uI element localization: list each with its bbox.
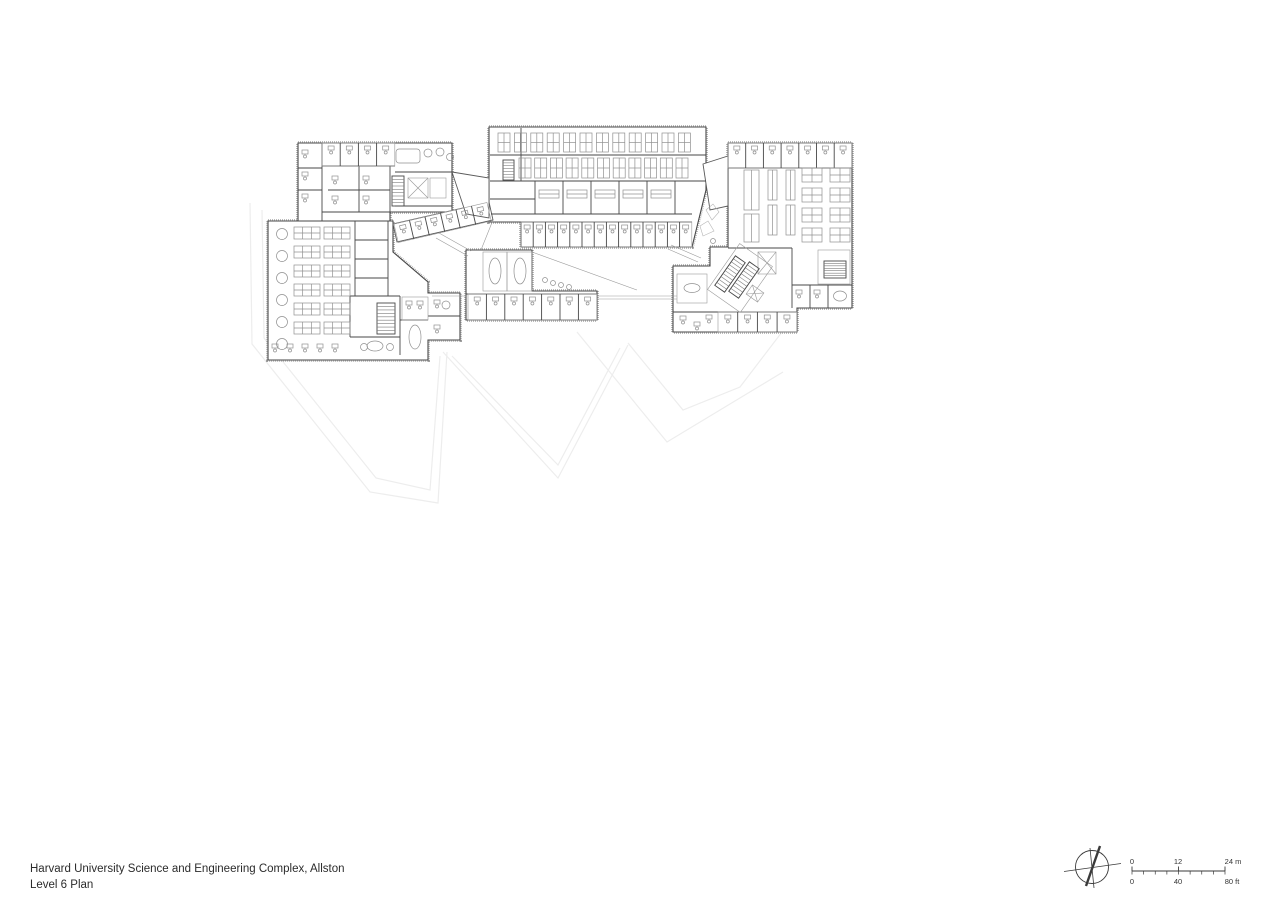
scale-label-m: 24 m: [1225, 857, 1242, 866]
building-wings: [268, 127, 852, 360]
north-arrow-icon: [1064, 846, 1121, 888]
scale-label-ft: 0: [1130, 877, 1134, 886]
floor-plan-canvas: 01224 m04080 ft: [0, 0, 1280, 904]
building-wing: [466, 250, 597, 320]
project-title: Harvard University Science and Engineeri…: [30, 861, 345, 877]
sheet-title: Level 6 Plan: [30, 877, 345, 893]
building-wing: [268, 221, 460, 360]
scale-label-m: 12: [1174, 857, 1182, 866]
drawing-sheet: 01224 m04080 ft Harvard University Scien…: [0, 0, 1280, 904]
building-wing: [298, 143, 452, 221]
scale-bar: 01224 m04080 ft: [1130, 857, 1241, 886]
link-corridor: [703, 156, 728, 210]
atrium-feature: [700, 221, 714, 236]
scale-label-m: 0: [1130, 857, 1134, 866]
title-block: Harvard University Science and Engineeri…: [30, 861, 345, 893]
scale-label-ft: 40: [1174, 877, 1182, 886]
scale-label-ft: 80 ft: [1225, 877, 1241, 886]
